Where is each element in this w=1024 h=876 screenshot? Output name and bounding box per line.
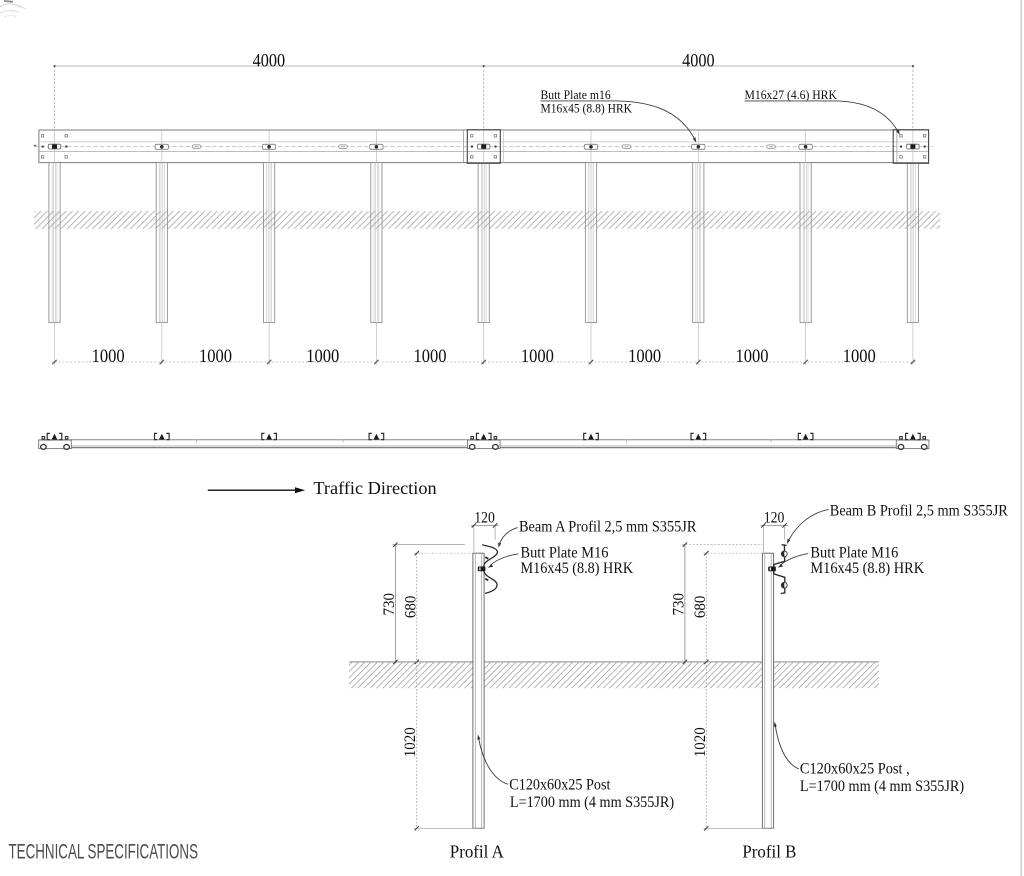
svg-text:1000: 1000: [735, 347, 768, 367]
svg-text:680: 680: [692, 596, 709, 619]
svg-text:1020: 1020: [402, 727, 419, 757]
svg-text:1000: 1000: [199, 347, 232, 367]
svg-text:L=1700 mm (4 mm S355JR): L=1700 mm (4 mm S355JR): [800, 778, 964, 795]
svg-text:C120x60x25 Post: C120x60x25 Post: [509, 777, 611, 794]
svg-text:1000: 1000: [521, 347, 554, 367]
svg-text:Butt Plate M16: Butt Plate M16: [521, 544, 609, 561]
svg-text:Profil A: Profil A: [450, 842, 504, 862]
svg-text:Beam A Profil 2,5 mm S355JR: Beam A Profil 2,5 mm S355JR: [519, 519, 697, 536]
svg-text:1000: 1000: [843, 347, 876, 367]
svg-text:M16x45 (8.8) HRK: M16x45 (8.8) HRK: [541, 101, 633, 116]
svg-text:Butt Plate M16: Butt Plate M16: [810, 544, 898, 561]
svg-text:4000: 4000: [253, 51, 286, 71]
svg-text:1000: 1000: [628, 347, 661, 367]
svg-text:680: 680: [402, 596, 419, 619]
svg-text:Profil B: Profil B: [742, 842, 796, 862]
svg-text:1000: 1000: [306, 347, 339, 367]
svg-text:M16x45 (8.8) HRK: M16x45 (8.8) HRK: [521, 560, 634, 577]
svg-text:M16x27 (4.6) HRK: M16x27 (4.6) HRK: [745, 87, 838, 102]
svg-text:Beam B Profil 2,5 mm S355JR: Beam B Profil 2,5 mm S355JR: [830, 502, 1009, 519]
svg-text:M16x45 (8.8) HRK: M16x45 (8.8) HRK: [810, 560, 924, 577]
svg-text:730: 730: [381, 593, 398, 616]
svg-text:1000: 1000: [414, 347, 447, 367]
svg-text:Traffic Direction: Traffic Direction: [313, 478, 436, 498]
svg-text:4000: 4000: [682, 51, 715, 71]
svg-text:1000: 1000: [92, 347, 125, 367]
svg-text:1020: 1020: [692, 727, 709, 757]
svg-text:TECHNICAL SPECIFICATIONS: TECHNICAL SPECIFICATIONS: [9, 840, 199, 864]
svg-text:L=1700 mm (4 mm S355JR): L=1700 mm (4 mm S355JR): [510, 794, 674, 811]
svg-text:730: 730: [670, 593, 687, 616]
svg-text:120: 120: [474, 510, 495, 527]
svg-text:C120x60x25 Post ,: C120x60x25 Post ,: [800, 761, 910, 778]
svg-text:120: 120: [764, 510, 785, 527]
